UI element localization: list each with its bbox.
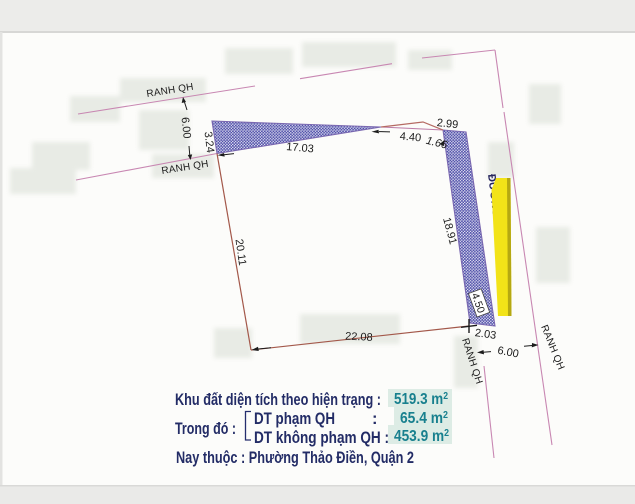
svg-text:4.40: 4.40 (399, 131, 421, 145)
svg-text:Nay thuộc : Phường Thảo Điền,: Nay thuộc : Phường Thảo Điền, Quận 2 (176, 449, 414, 467)
svg-text::: : (372, 410, 378, 428)
svg-text:6.00: 6.00 (179, 117, 193, 140)
svg-text:2.99: 2.99 (436, 117, 459, 131)
svg-text:Khu đất diện tích theo hiện tr: Khu đất diện tích theo hiện trạng : (175, 391, 381, 409)
svg-text:65.4 m2: 65.4 m2 (400, 410, 448, 427)
svg-text:22.08: 22.08 (345, 331, 373, 344)
svg-text:519.3 m2: 519.3 m2 (394, 391, 448, 408)
svg-text:Trong đó :: Trong đó : (175, 420, 236, 438)
svg-text:DT không phạm QH :: DT không phạm QH : (254, 429, 389, 447)
svg-text:17.03: 17.03 (286, 141, 314, 155)
svg-text:DT phạm QH: DT phạm QH (254, 410, 335, 428)
svg-text:453.9 m2: 453.9 m2 (394, 428, 449, 445)
